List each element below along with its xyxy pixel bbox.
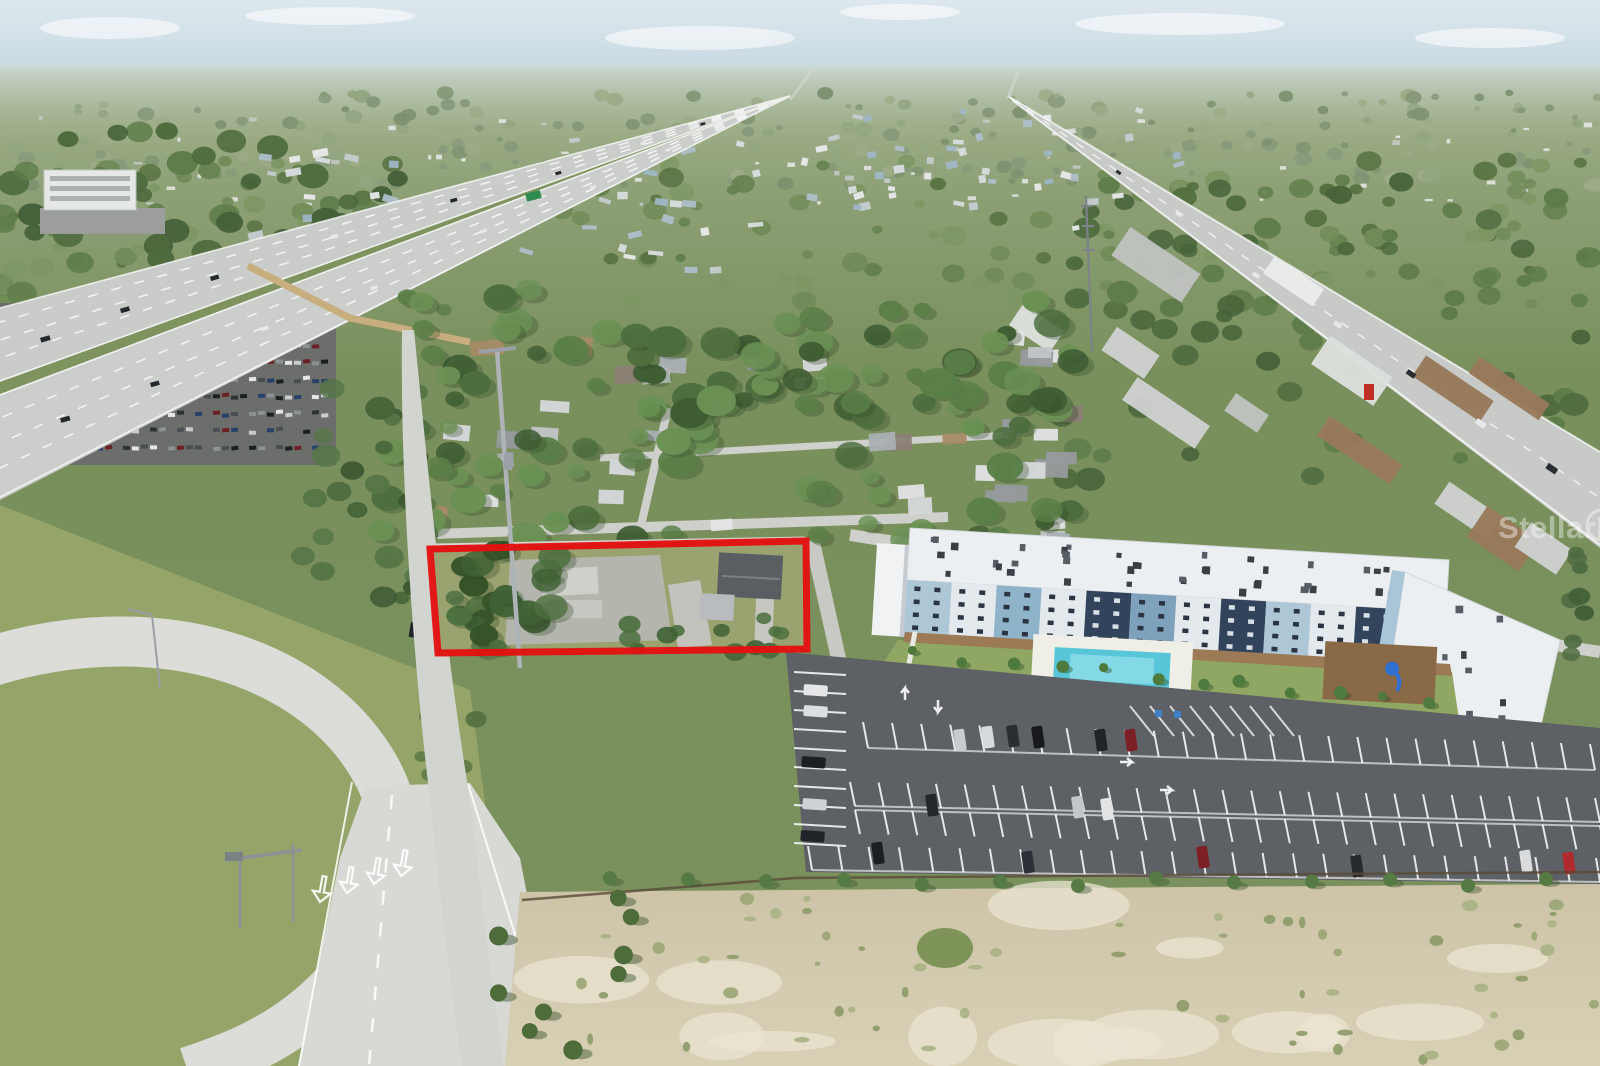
aerial-photo: StellarMLS (0, 0, 1600, 1066)
shed (699, 593, 734, 621)
watermark-text: StellarMLS (1498, 510, 1600, 545)
watermark: StellarMLS (1498, 510, 1600, 545)
